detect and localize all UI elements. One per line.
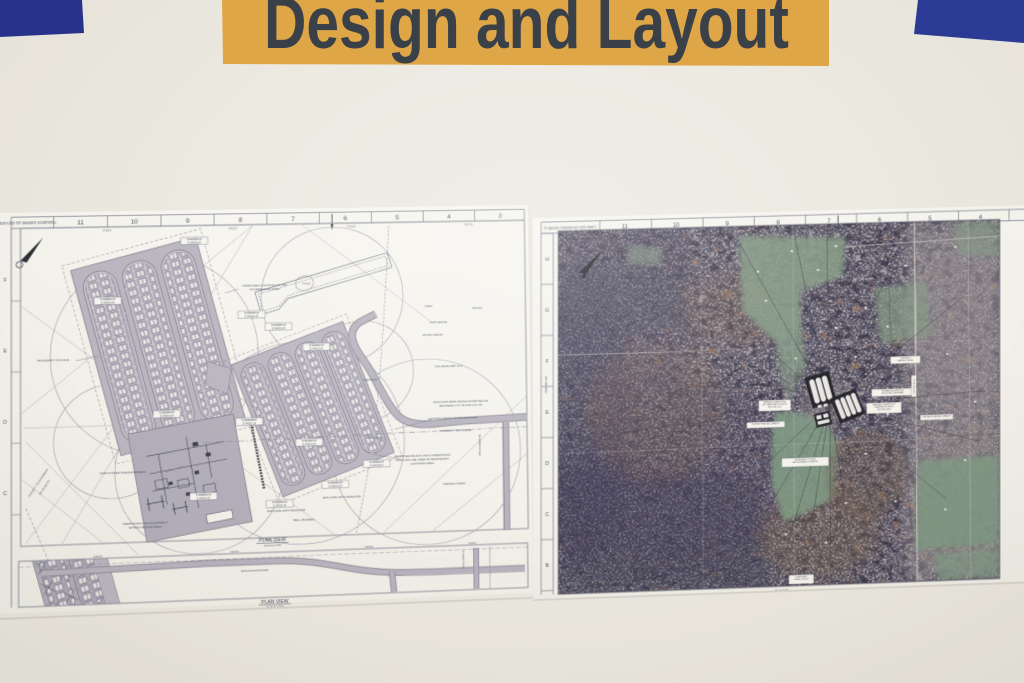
svg-text:4: 4	[447, 214, 451, 221]
svg-text:PAW FENCE: PAW FENCE	[430, 320, 447, 324]
svg-text:E 346001.64: E 346001.64	[272, 327, 286, 330]
svg-text:3: 3	[498, 213, 502, 220]
svg-text:PIN 45025-0067 (LT): PIN 45025-0067 (LT)	[435, 364, 462, 369]
svg-text:ASES: ASES	[425, 304, 433, 308]
svg-text:E 346001.64: E 346001.64	[310, 347, 324, 350]
svg-text:E 346001.64: E 346001.64	[101, 301, 115, 304]
svg-text:ELDRED ROAD: ELDRED ROAD	[478, 435, 482, 457]
svg-text:WATERCOURSE: WATERCOURSE	[898, 359, 914, 362]
svg-text:E 346001.64: E 346001.64	[273, 504, 287, 507]
svg-text:C: C	[3, 491, 7, 497]
svg-text:E 346001.64: E 346001.64	[302, 443, 316, 446]
svg-text:WH GATE: WH GATE	[364, 378, 378, 382]
svg-text:8: 8	[239, 217, 243, 224]
svg-text:F: F	[4, 278, 7, 284]
svg-text:WOOD FENCE: WOOD FENCE	[423, 333, 443, 337]
svg-text:5020000 mN: 5020000 mN	[544, 376, 548, 393]
svg-text:LAYDOWN AREA: LAYDOWN AREA	[411, 461, 434, 466]
svg-text:POND: POND	[303, 282, 311, 286]
svg-text:F: F	[546, 359, 549, 365]
svg-text:E 346001.64: E 346001.64	[242, 422, 256, 425]
svg-text:E 346001.64: E 346001.64	[187, 241, 201, 244]
svg-text:5: 5	[396, 215, 400, 222]
svg-text:346000: 346000	[347, 224, 356, 228]
svg-text:ROLDS: ROLDS	[472, 306, 482, 310]
svg-text:G: G	[545, 308, 549, 314]
svg-text:9: 9	[186, 218, 190, 225]
svg-text:345800: 345800	[468, 541, 477, 545]
svg-text:71154023-100000-41-020-0001: 71154023-100000-41-020-0001	[0, 220, 57, 226]
svg-text:STORMWATER POND: STORMWATER POND	[250, 287, 281, 292]
svg-text:D: D	[545, 461, 549, 467]
svg-text:E 346001.64: E 346001.64	[197, 497, 211, 500]
svg-text:11: 11	[77, 220, 84, 227]
svg-text:BELL (BURIED): BELL (BURIED)	[294, 517, 315, 522]
svg-text:346500: 346500	[103, 228, 112, 232]
svg-text:Design and Layout: Design and Layout	[264, 0, 789, 65]
svg-text:D: D	[3, 420, 7, 426]
svg-text:SCALE 1:20,000: SCALE 1:20,000	[794, 578, 810, 581]
svg-text:WH GATE: WH GATE	[368, 436, 382, 440]
svg-text:346500: 346500	[93, 554, 102, 558]
svg-text:345750: 345750	[464, 223, 473, 227]
svg-text:ELDRED ROAD: ELDRED ROAD	[461, 551, 465, 569]
svg-text:E 346001.64: E 346001.64	[245, 315, 259, 318]
svg-text:C: C	[545, 512, 549, 518]
svg-text:6: 6	[344, 215, 348, 222]
svg-text:BOUNDARY OF ILR-M: BOUNDARY OF ILR-M	[38, 358, 70, 363]
svg-text:E 346001.64: E 346001.64	[329, 485, 343, 488]
svg-text:346000: 346000	[365, 545, 374, 549]
svg-text:BEYOND 2026: BEYOND 2026	[768, 406, 782, 408]
svg-text:E 346001.64: E 346001.64	[370, 464, 384, 467]
svg-text:E 346001.64: E 346001.64	[160, 415, 174, 418]
svg-text:H: H	[545, 257, 549, 263]
svg-text:346250: 346250	[230, 550, 239, 554]
svg-text:SCALE 1:750: SCALE 1:750	[264, 543, 281, 548]
svg-text:6TH SIDE ROAD: 6TH SIDE ROAD	[913, 378, 916, 393]
svg-text:TURNOUT AREA: TURNOUT AREA	[442, 481, 465, 486]
svg-text:346250: 346250	[228, 226, 237, 230]
svg-text:10: 10	[131, 219, 139, 226]
svg-text:7: 7	[291, 216, 295, 223]
